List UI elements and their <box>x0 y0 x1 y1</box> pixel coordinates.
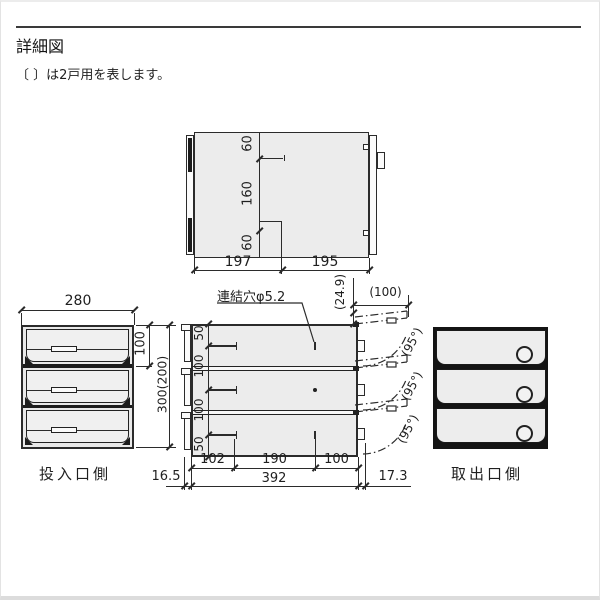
dim-label: 100 <box>316 452 358 467</box>
ext-line <box>21 313 22 325</box>
dim-label: (100) <box>363 285 408 299</box>
dim-label: 197 <box>218 254 258 270</box>
dim-line <box>21 310 134 311</box>
flap-strip <box>184 329 191 362</box>
top-view-hinge-bar <box>188 218 192 252</box>
step-line <box>259 221 281 222</box>
flap-crease <box>27 390 128 391</box>
dim-label: 102 <box>192 452 234 467</box>
tier-separator <box>23 364 132 368</box>
dim-label: 16.5 <box>148 469 184 484</box>
dim-label: 17.3 <box>373 469 413 484</box>
hole-dot <box>313 388 317 392</box>
flap-crease <box>27 430 128 431</box>
leader-end <box>284 155 285 161</box>
step-line <box>281 221 282 258</box>
mail-flap <box>26 410 129 443</box>
lock-cylinder <box>516 346 533 363</box>
dim-line <box>149 325 150 366</box>
top-view-notch <box>363 230 369 236</box>
top-view-notch <box>363 144 369 150</box>
mail-flap <box>26 370 129 403</box>
hole-mark <box>236 431 237 439</box>
shelf-separator <box>193 366 356 371</box>
insertion-side-label: 投入口側 <box>39 463 111 484</box>
leader-line <box>209 389 237 390</box>
top-view-hinge-bar <box>188 138 192 172</box>
dim-label: 100 <box>134 314 149 374</box>
dim-label: (24.9) <box>333 262 347 322</box>
flap-crease <box>27 349 128 350</box>
lock-cylinder <box>516 386 533 403</box>
leader-line <box>259 158 283 159</box>
hole-mark <box>314 431 315 439</box>
top-view-right-panel <box>369 135 377 255</box>
hole-leader <box>211 297 321 347</box>
ext-line <box>353 278 354 324</box>
shelf-separator <box>193 410 356 415</box>
mail-flap <box>26 329 129 362</box>
tier-separator <box>23 405 132 409</box>
ext-line <box>194 258 195 274</box>
flap-hinge <box>181 412 191 419</box>
top-view-latch-tab <box>377 152 385 169</box>
ext-line <box>408 295 409 317</box>
dim-line <box>353 305 408 306</box>
leader-line <box>209 434 237 435</box>
dim-label: 190 <box>254 452 296 467</box>
hole-mark <box>236 386 237 394</box>
extraction-side-label: 取出口側 <box>451 463 523 484</box>
flap-strip <box>184 373 191 406</box>
detail-drawing-page: 詳細図 〔 〕は2戸用を表します。 60 160 60 197 195 <box>0 0 600 600</box>
dim-line <box>191 468 358 469</box>
dim-label: 300(200) <box>155 355 170 415</box>
flap-handle <box>51 346 77 352</box>
dim-label: 280 <box>58 293 98 309</box>
flap-handle <box>51 387 77 393</box>
header-rule <box>16 26 581 28</box>
dim-line <box>166 486 411 487</box>
flap-handle <box>51 427 77 433</box>
dim-line <box>259 132 260 258</box>
flap-hinge <box>181 368 191 375</box>
dim-label: 392 <box>253 471 295 486</box>
flap-hinge <box>181 324 191 331</box>
lock-cylinder <box>516 425 533 442</box>
legend-note: 〔 〕は2戸用を表します。 <box>16 64 170 83</box>
flap-strip <box>184 417 191 450</box>
page-title: 詳細図 <box>16 33 64 57</box>
